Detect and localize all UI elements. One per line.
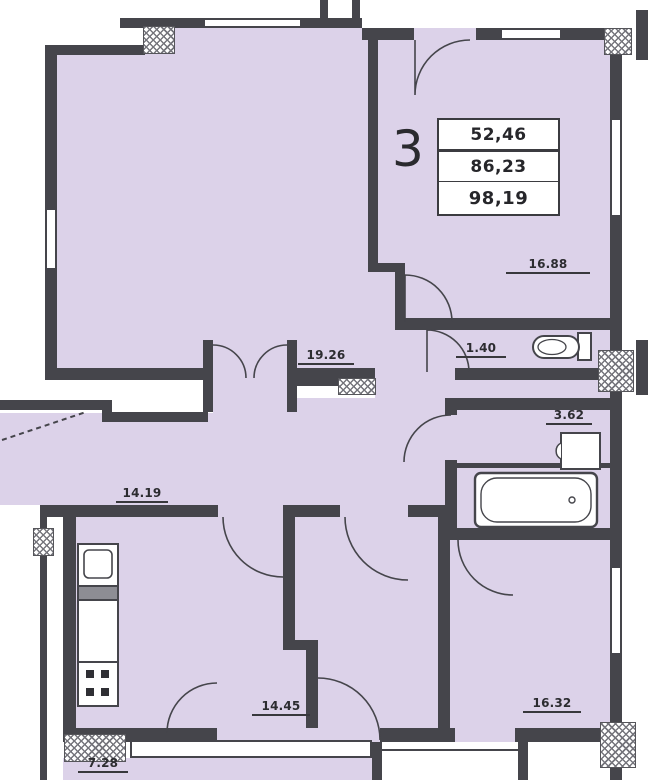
kitchen-sink-icon	[78, 544, 118, 662]
plan-vector-layer	[0, 0, 650, 780]
area-label-hall: 14.19	[116, 487, 168, 503]
double-door-arc	[213, 345, 287, 378]
floor-plan: 3 52,46 86,23 98,19 16.88 19.26 1.40 3.6…	[0, 0, 650, 780]
kitchen-door-arc	[223, 517, 283, 577]
area-label-living-room: 19.26	[298, 349, 354, 365]
area-label-balcony: 7.28	[78, 757, 128, 773]
kitchen-counter-icon	[78, 600, 118, 662]
living-area-value: 52,46	[439, 120, 558, 152]
washbasin-icon	[556, 433, 600, 469]
area-label-bedroom-bottom-middle: 14.45	[252, 700, 310, 716]
room-balcony-door-arc	[318, 678, 380, 740]
stove-icon	[78, 662, 118, 706]
bathroom-door-arc	[404, 415, 451, 462]
right-room-door-arc	[458, 540, 513, 595]
bathtub-icon	[475, 473, 597, 527]
area-label-wc: 1.40	[456, 342, 506, 358]
unit-number: 3	[392, 124, 424, 174]
balcony-door-arc	[415, 40, 470, 95]
middle-room-door-arc	[345, 517, 408, 580]
kitchen-balcony-door-arc	[167, 683, 217, 733]
apartment-area-value: 86,23	[439, 152, 558, 182]
area-info-table: 52,46 86,23 98,19	[437, 118, 560, 216]
bedroom-door-arc	[405, 275, 452, 322]
area-label-bedroom-bottom-right: 16.32	[523, 697, 581, 713]
area-label-bedroom-top-right: 16.88	[506, 258, 590, 274]
area-label-bathroom: 3.62	[546, 409, 592, 425]
entrance-door-dashed-line	[2, 412, 86, 440]
toilet-icon	[533, 333, 591, 360]
total-area-value: 98,19	[439, 182, 558, 214]
